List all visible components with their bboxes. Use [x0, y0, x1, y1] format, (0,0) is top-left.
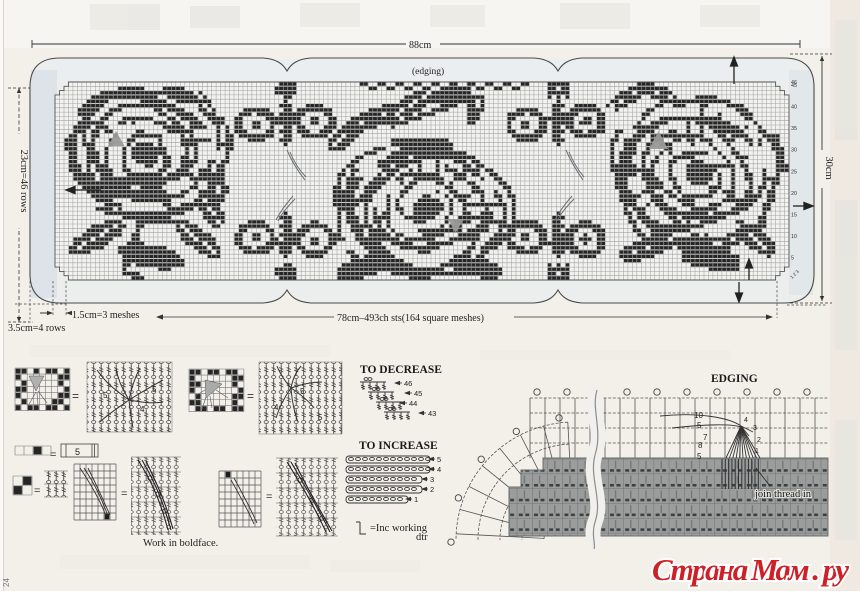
- svg-text:4: 4: [274, 403, 279, 412]
- svg-text:5: 5: [318, 413, 323, 422]
- svg-text:5: 5: [75, 447, 80, 457]
- svg-text:5: 5: [437, 455, 441, 464]
- svg-text:23cm=46 rows: 23cm=46 rows: [18, 150, 29, 213]
- svg-text:=: =: [50, 449, 56, 461]
- svg-text:88cm: 88cm: [409, 40, 431, 51]
- svg-text:30cm: 30cm: [823, 156, 834, 179]
- svg-text:40: 40: [791, 105, 797, 111]
- svg-text:24: 24: [2, 578, 11, 587]
- svg-text:1.5cm=3 meshes: 1.5cm=3 meshes: [72, 310, 139, 321]
- svg-text:7: 7: [703, 433, 708, 442]
- svg-text:5: 5: [103, 391, 108, 400]
- svg-text:=: =: [247, 389, 254, 403]
- svg-text:3.5cm=4 rows: 3.5cm=4 rows: [8, 323, 65, 334]
- svg-text:1: 1: [755, 448, 759, 455]
- svg-text:3: 3: [753, 425, 757, 432]
- svg-text:15: 15: [791, 212, 797, 218]
- svg-text:5: 5: [791, 255, 794, 261]
- svg-text:TO DECREASE: TO DECREASE: [360, 364, 442, 376]
- svg-text:dtr: dtr: [416, 532, 428, 543]
- svg-text:44: 44: [409, 399, 417, 408]
- svg-text:=: =: [72, 389, 79, 403]
- svg-text:4: 4: [140, 405, 145, 414]
- svg-text:5: 5: [152, 385, 157, 394]
- svg-text:78cm–493ch sts(164 square mesh: 78cm–493ch sts(164 square meshes): [337, 313, 484, 324]
- svg-text:8: 8: [698, 441, 703, 450]
- svg-text:43: 43: [428, 409, 436, 418]
- svg-text:4: 4: [437, 465, 441, 474]
- svg-text:5: 5: [300, 387, 305, 396]
- svg-text:4: 4: [744, 417, 748, 424]
- svg-text:5: 5: [697, 421, 702, 430]
- svg-text:10: 10: [694, 411, 703, 420]
- svg-text:35: 35: [791, 126, 797, 132]
- svg-text:30: 30: [791, 148, 797, 154]
- svg-text:Work in boldface.: Work in boldface.: [143, 538, 218, 549]
- svg-text:5: 5: [697, 452, 702, 461]
- svg-text:45: 45: [414, 389, 422, 398]
- svg-text:2: 2: [757, 437, 761, 444]
- svg-text:46: 46: [404, 379, 412, 388]
- svg-text:EDGING: EDGING: [711, 373, 758, 385]
- svg-text:join thread in: join thread in: [754, 489, 812, 500]
- svg-text:10: 10: [791, 234, 797, 240]
- svg-text:25: 25: [791, 169, 797, 175]
- svg-text:2: 2: [430, 485, 434, 494]
- svg-text:1: 1: [414, 495, 418, 504]
- svg-text:TO INCREASE: TO INCREASE: [359, 440, 438, 452]
- svg-text:(edging): (edging): [412, 66, 444, 77]
- svg-text:=: =: [121, 488, 127, 500]
- svg-text:=: =: [266, 491, 272, 503]
- svg-text:3: 3: [430, 475, 434, 484]
- svg-text:20: 20: [791, 191, 797, 197]
- svg-text:=: =: [34, 485, 40, 497]
- svg-text:Страна Мам . ру: Страна Мам . ру: [652, 552, 849, 587]
- svg-text:45: 45: [791, 83, 797, 89]
